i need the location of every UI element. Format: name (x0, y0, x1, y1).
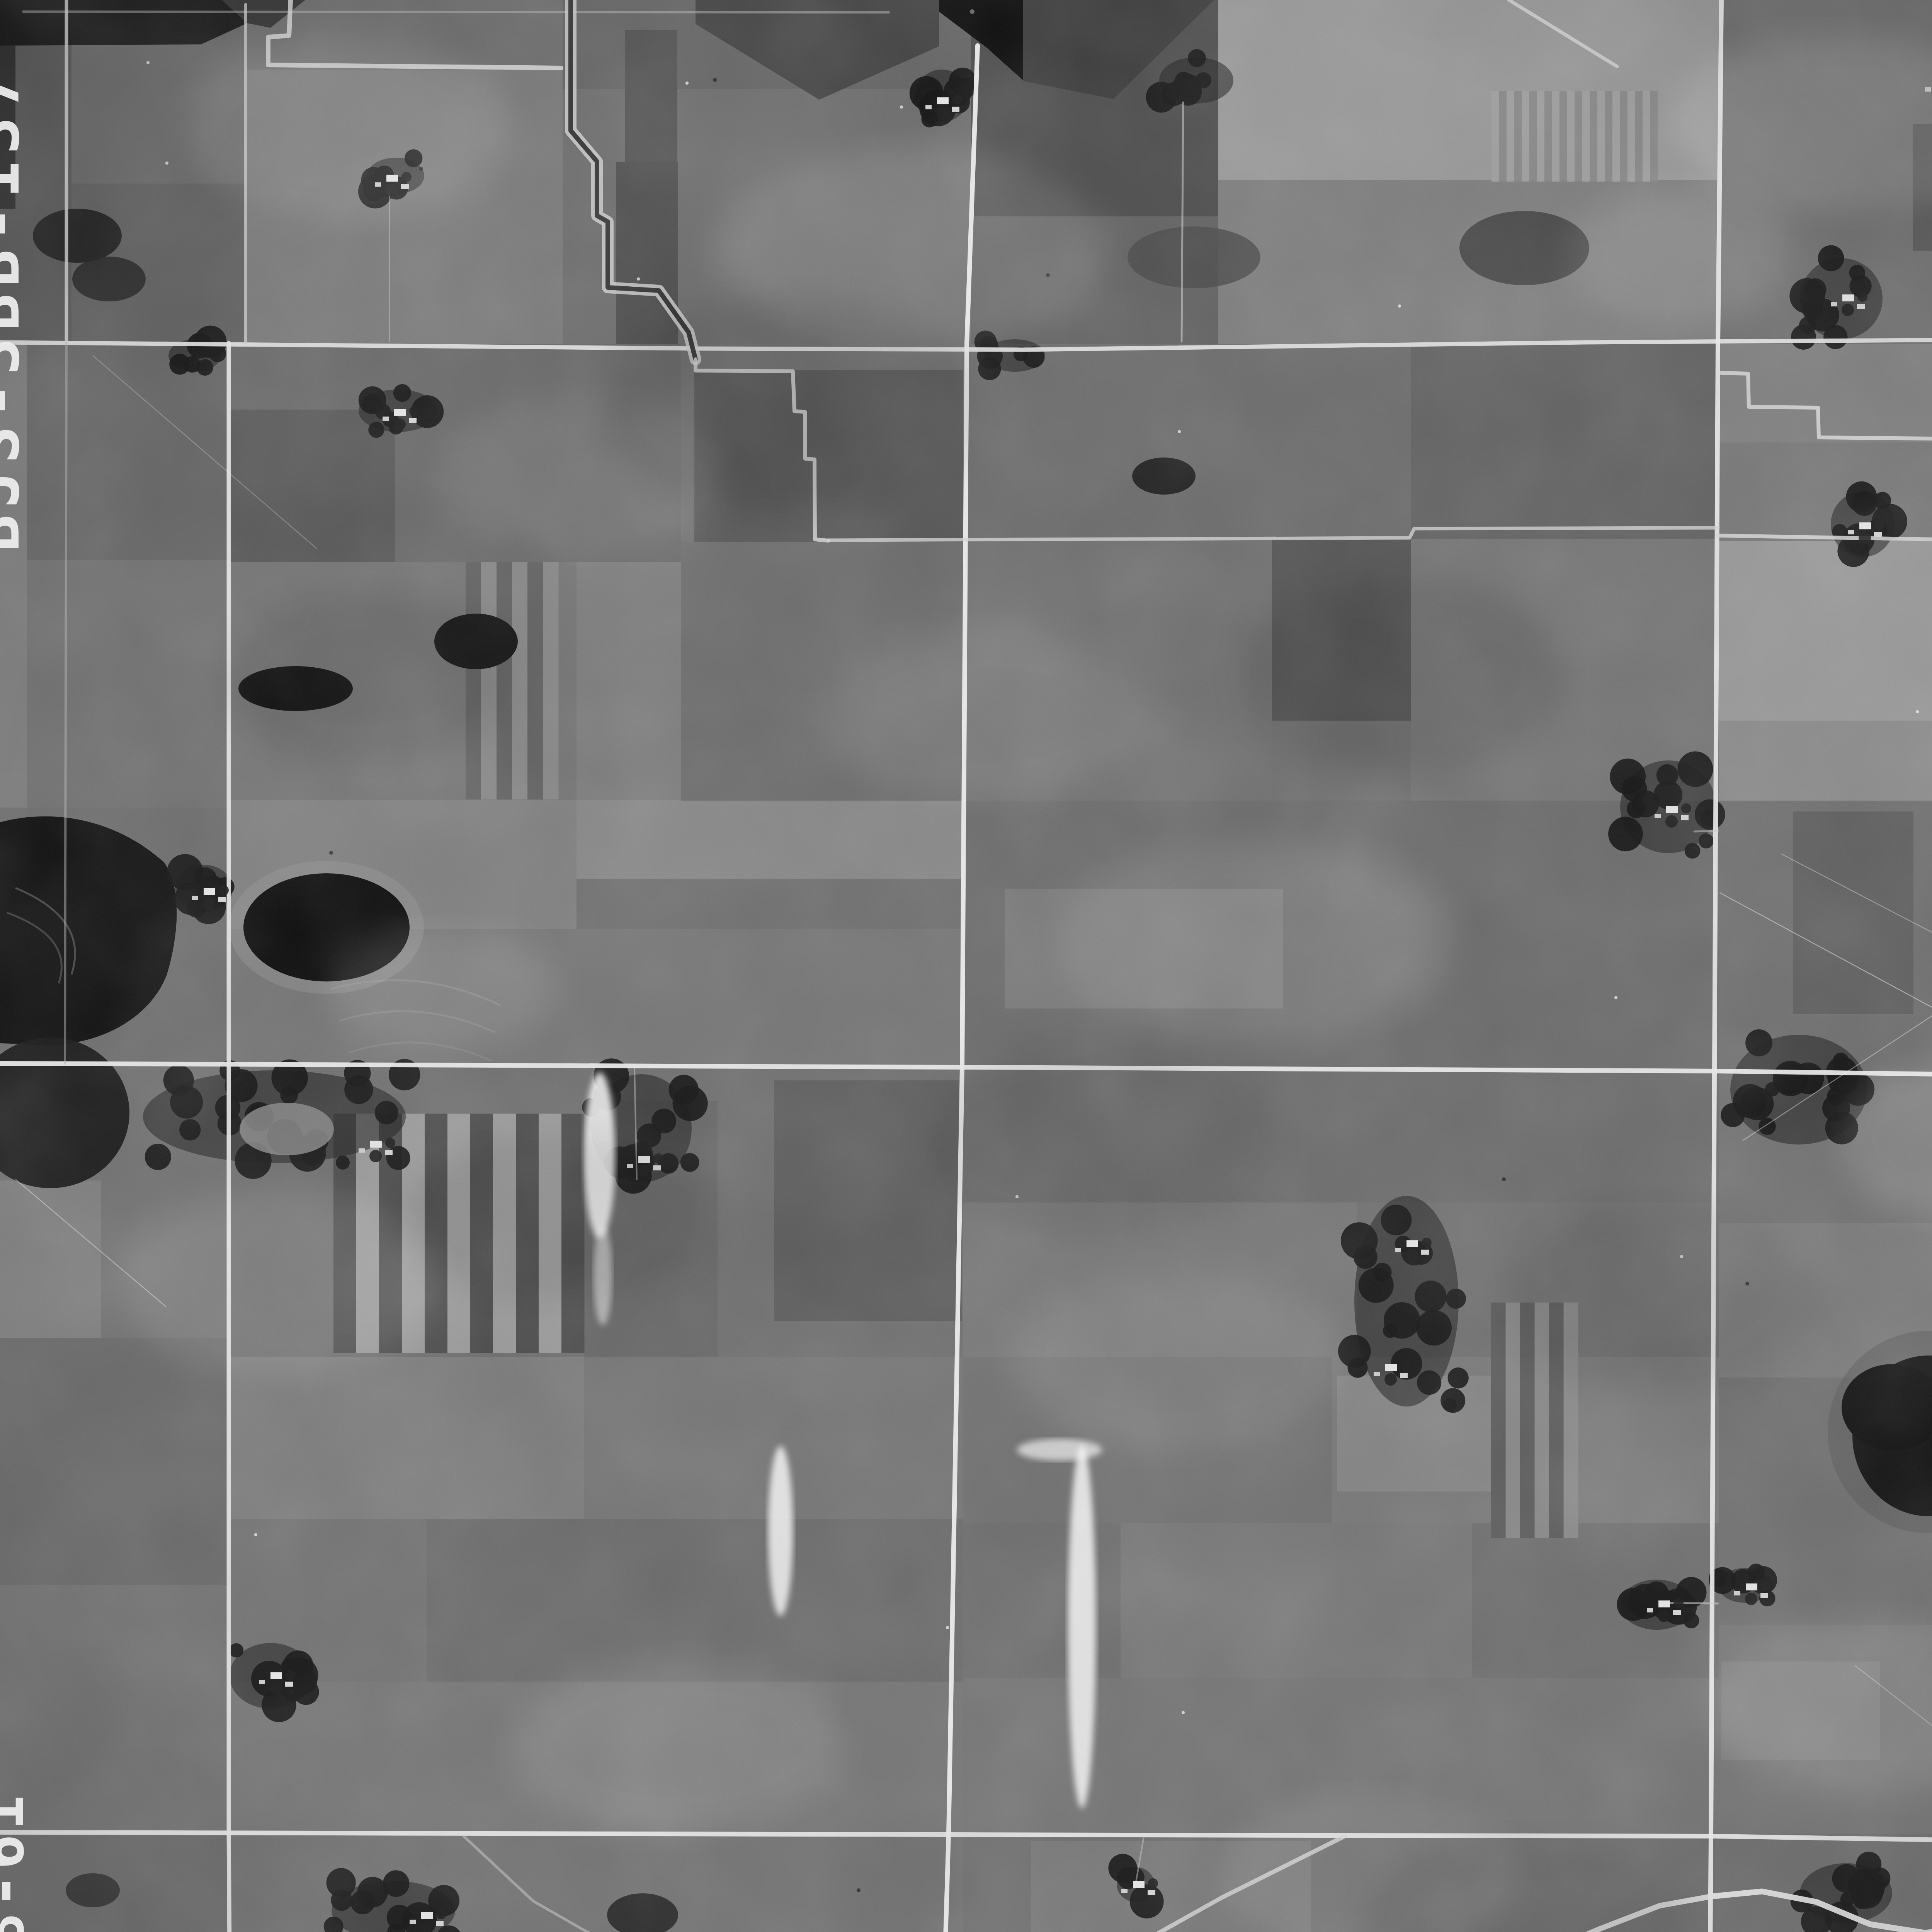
aerial-photo: BJS-3BB-137 6-18-61 (0, 0, 1932, 1932)
photo-id-label: BJS-3BB-137 (0, 66, 33, 552)
photo-canvas: BJS-3BB-137 6-18-61 (0, 0, 1932, 1932)
vignette-overlay (0, 0, 1932, 1932)
photo-date-label: 6-18-61 (0, 1791, 37, 1932)
